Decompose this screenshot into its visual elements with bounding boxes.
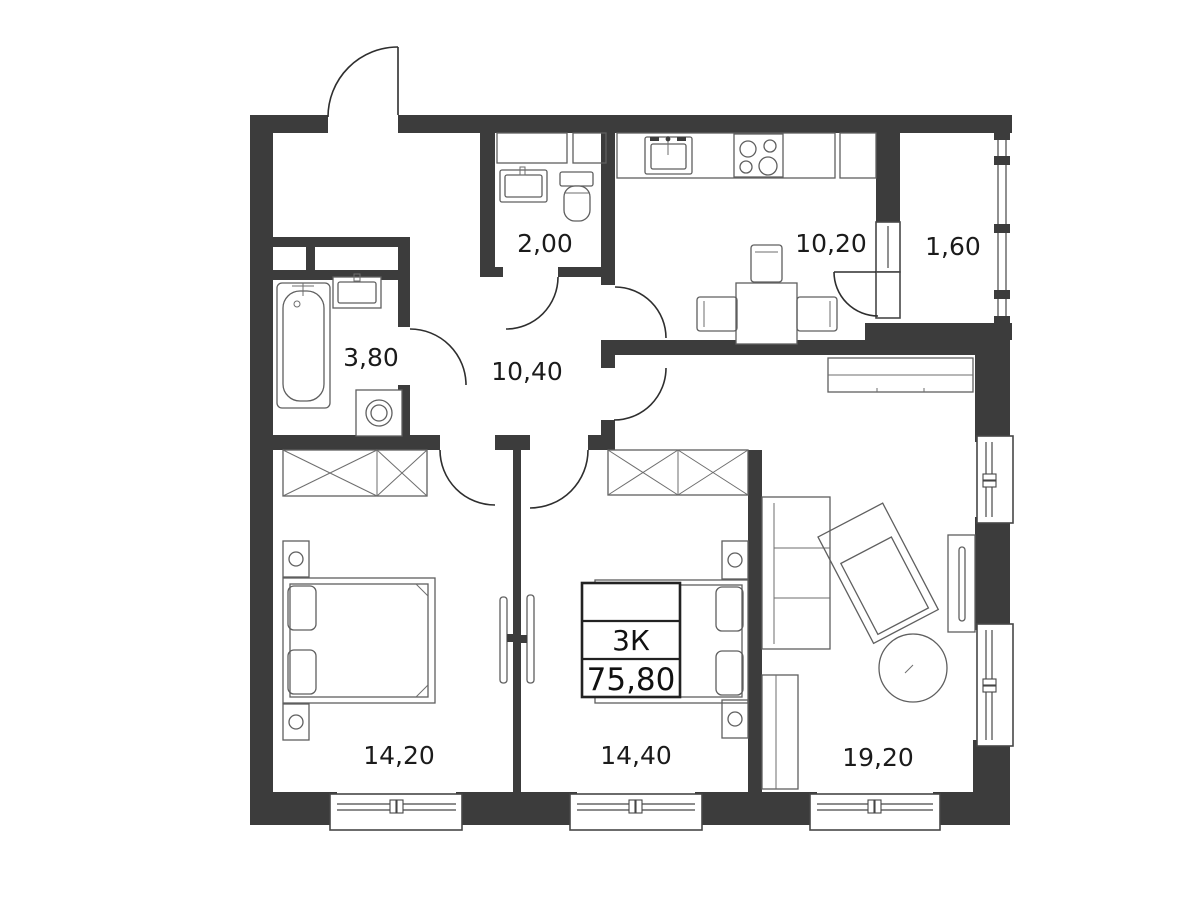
sofa-icon xyxy=(762,497,830,649)
dining-table-icon xyxy=(736,283,797,344)
bed-icon xyxy=(283,578,435,703)
chair-icon xyxy=(751,245,782,282)
wc-door xyxy=(506,277,558,329)
toilet-icon xyxy=(560,172,593,221)
stove-icon xyxy=(734,134,783,177)
kitchen-sink-icon xyxy=(645,136,692,174)
area-label-bedroom-1: 14,20 xyxy=(363,741,435,770)
kitchen-door xyxy=(615,287,666,338)
nightstand-icon xyxy=(722,541,748,579)
console-shelf-icon xyxy=(762,675,798,789)
total-area-label: 75,80 xyxy=(587,662,676,698)
tv-icon xyxy=(959,547,965,621)
wc-fixtures xyxy=(497,133,606,221)
window-bedroom-1 xyxy=(330,794,462,830)
bedroom-1-furniture xyxy=(283,450,513,740)
area-label-living: 19,20 xyxy=(842,743,914,772)
nightstand-icon xyxy=(722,700,748,738)
area-label-kitchen: 10,20 xyxy=(795,229,867,258)
rug-icon xyxy=(879,634,947,702)
area-label-balcony: 1,60 xyxy=(925,232,981,261)
wardrobe-icon xyxy=(283,450,427,496)
tv-icon xyxy=(500,597,513,683)
floorplan: 2,00 10,20 1,60 3,80 10,40 14,20 14,40 1… xyxy=(0,0,1200,900)
bedroom-1-door xyxy=(440,450,495,505)
windows xyxy=(330,133,1013,830)
entrance-door xyxy=(328,47,398,117)
window-living-right-lower xyxy=(977,624,1013,746)
window-living-right-upper xyxy=(977,436,1013,523)
living-room-door xyxy=(614,368,666,420)
chair-icon xyxy=(797,297,837,331)
living-room-furniture xyxy=(762,358,975,789)
washing-machine-icon xyxy=(356,390,402,436)
balcony-door xyxy=(834,272,878,316)
plan-summary-box: 3К 75,80 xyxy=(582,583,680,698)
floorplan-canvas: 2,00 10,20 1,60 3,80 10,40 14,20 14,40 1… xyxy=(0,0,1200,900)
wardrobe-icon xyxy=(608,450,748,495)
chaise-lounge-icon xyxy=(818,503,938,643)
tv-stand-icon xyxy=(948,535,975,632)
area-label-wc: 2,00 xyxy=(517,229,573,258)
window-bedroom-2 xyxy=(570,794,702,830)
bedroom-2-door xyxy=(530,450,588,508)
tv-icon xyxy=(521,595,534,683)
wc-shelf-icon xyxy=(497,133,567,163)
apartment-type-label: 3К xyxy=(612,624,650,657)
area-label-hallway: 10,40 xyxy=(491,357,563,386)
nightstand-icon xyxy=(283,704,309,740)
nightstand-icon xyxy=(283,541,309,577)
chair-icon xyxy=(697,297,737,331)
bathroom-door xyxy=(410,329,466,385)
balcony-glazing xyxy=(994,133,1010,323)
window-living-room xyxy=(810,794,940,830)
bathtub-icon xyxy=(277,283,330,408)
wc-sink-icon xyxy=(500,167,547,202)
bathroom-sink-icon xyxy=(333,274,381,308)
balcony-door-block xyxy=(876,222,900,318)
area-label-bedroom-2: 14,40 xyxy=(600,741,672,770)
kitchen-counter-end xyxy=(840,133,876,178)
area-label-bathroom: 3,80 xyxy=(343,343,399,372)
wall-shelf-icon xyxy=(828,358,973,392)
